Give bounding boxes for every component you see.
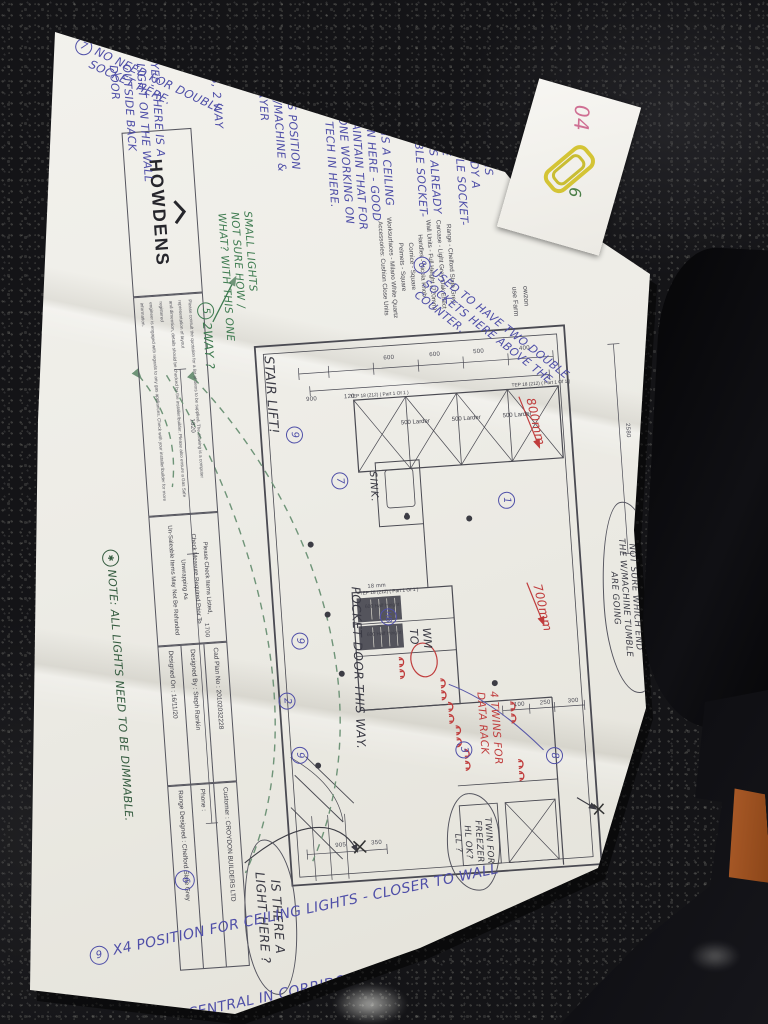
dim-350: 350 xyxy=(371,840,382,847)
note-3-number: 3 xyxy=(202,43,220,61)
note-9-number: 9 xyxy=(88,944,111,967)
dim-905: 905 xyxy=(335,842,346,849)
two-way-note-text: 2WAY ? xyxy=(199,322,217,370)
dim-1820: 1820 xyxy=(189,418,196,433)
counter-reflection xyxy=(330,982,410,1024)
note-4-text: THIS IS POSITION OF W/MACHINE & T/DRYER xyxy=(254,68,302,173)
data-rack-note: 4 TWINS FOR DATA RACK xyxy=(473,691,504,766)
note-5-text: THERE IS A CEILING SPOT IN HERE - GOOD T… xyxy=(320,90,398,233)
dim-250: 250 xyxy=(540,700,551,707)
note-4-number: 4 xyxy=(277,50,295,68)
counter-reflection xyxy=(688,940,742,972)
note-1-text: THERE IS ALREADY A DOUBLE SOCKET- HERE xyxy=(437,122,499,227)
dim-18mm: 18 mm xyxy=(367,583,386,590)
photo-of-kitchen-plan: HOWDENS Please consult the quotation for… xyxy=(0,0,768,1024)
dim-900: 900 xyxy=(306,396,317,403)
note-6-number: 6 xyxy=(142,43,160,61)
check-notice-box: Please Check Items Listed, Check Measure… xyxy=(148,512,227,647)
sink-label: SINK. xyxy=(366,471,380,503)
address-fragment: owzon use Farm xyxy=(508,286,531,317)
tape-pink-mark: 04 xyxy=(568,104,594,131)
note-1-number: 1 xyxy=(473,102,491,120)
note-5-number: 5 xyxy=(370,71,388,89)
check-notice-text: Please Check Items Listed, Check Measure… xyxy=(152,513,226,645)
dim-100: 100 xyxy=(514,701,525,708)
dim-600: 600 xyxy=(383,355,394,362)
notes-heading: NOTES! xyxy=(477,94,500,155)
dim-2580: 2580 xyxy=(624,423,631,438)
note-2-number: 2 xyxy=(418,84,436,102)
plan-fields-box-a: Cad Plan No : 20102032228 Designed By : … xyxy=(157,642,237,787)
note-7-number: 7 xyxy=(72,35,95,58)
note-2-text: THERE IS ALREADY A DOUBLE SOCKET- HERE. xyxy=(395,103,444,219)
dim-300: 300 xyxy=(568,698,579,705)
dim-600: 600 xyxy=(429,352,440,359)
dim-1700: 1700 xyxy=(203,623,210,638)
dark-object-top-right xyxy=(638,245,768,731)
wm-label: WM TO xyxy=(406,627,434,650)
